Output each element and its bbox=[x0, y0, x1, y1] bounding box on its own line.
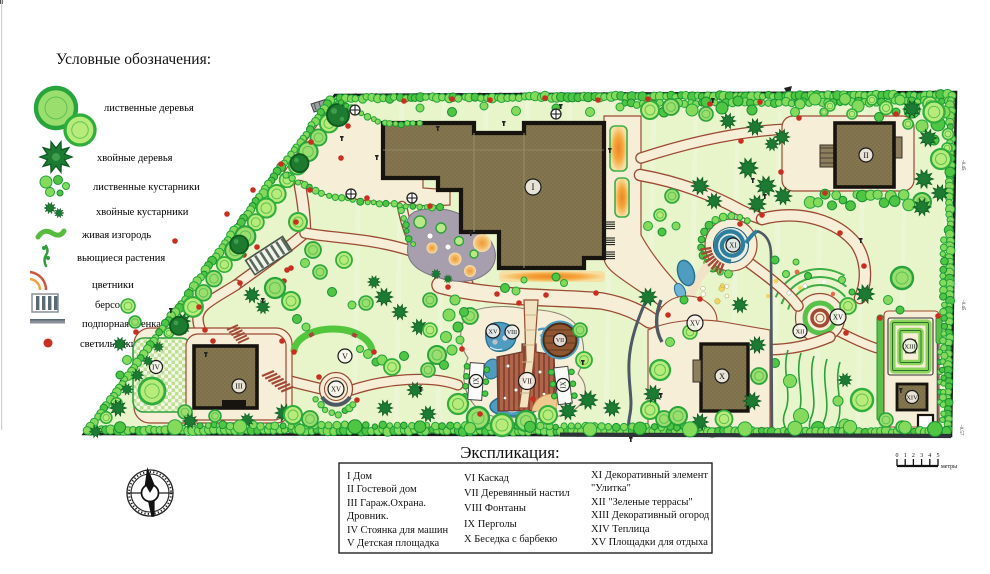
svg-text:Экспликация:: Экспликация: bbox=[460, 443, 560, 462]
svg-text:IX: IX bbox=[473, 377, 481, 384]
svg-text:III Гараж.Охрана.: III Гараж.Охрана. bbox=[347, 498, 426, 509]
svg-text:-0.57: -0.57 bbox=[958, 425, 963, 436]
svg-text:-0.45: -0.45 bbox=[960, 300, 965, 311]
svg-text:светильники: светильники bbox=[80, 339, 137, 350]
svg-text:5: 5 bbox=[937, 453, 940, 459]
svg-text:XV: XV bbox=[331, 386, 341, 394]
svg-text:II Гостевой дом: II Гостевой дом bbox=[347, 484, 417, 495]
svg-text:3: 3 bbox=[920, 453, 923, 459]
svg-text:лиственные кустарники: лиственные кустарники bbox=[93, 182, 200, 193]
svg-text:живая изгородь: живая изгородь bbox=[81, 230, 151, 241]
svg-text:VII Деревянный настил: VII Деревянный настил bbox=[464, 488, 570, 499]
svg-text:2: 2 bbox=[912, 453, 915, 459]
svg-text:X Беседка с барбекю: X Беседка с барбекю bbox=[464, 534, 558, 545]
svg-text:V: V bbox=[342, 352, 348, 361]
svg-text:IV: IV bbox=[152, 363, 160, 372]
svg-text:метры: метры bbox=[941, 464, 957, 470]
svg-text:XIII Декоративный огород: XIII Декоративный огород bbox=[591, 510, 710, 521]
svg-text:IX Перголы: IX Перголы bbox=[464, 519, 517, 530]
svg-text:берсо: берсо bbox=[95, 300, 120, 311]
svg-text:"Улитка": "Улитка" bbox=[591, 483, 631, 494]
svg-text:X: X bbox=[719, 372, 725, 381]
svg-text:-0.45: -0.45 bbox=[960, 160, 965, 171]
svg-text:I: I bbox=[532, 182, 535, 192]
svg-text:0: 0 bbox=[896, 453, 899, 459]
svg-text:Условные обозначения:: Условные обозначения: bbox=[56, 51, 211, 68]
svg-text:IV Стоянка для машин: IV Стоянка для машин bbox=[347, 525, 449, 536]
svg-text:XII "Зеленые террасы": XII "Зеленые террасы" bbox=[591, 497, 693, 508]
svg-text:VIII: VIII bbox=[507, 330, 517, 336]
svg-text:XI Декоративный элемент: XI Декоративный элемент bbox=[591, 470, 708, 481]
svg-text:цветники: цветники bbox=[92, 280, 134, 291]
svg-text:XII: XII bbox=[795, 328, 804, 335]
svg-text:XV: XV bbox=[690, 320, 700, 328]
svg-text:VII: VII bbox=[556, 338, 564, 344]
svg-text:VI Каскад: VI Каскад bbox=[464, 473, 509, 484]
svg-text:лиственные деревья: лиственные деревья bbox=[104, 103, 194, 114]
svg-text:II: II bbox=[863, 151, 869, 160]
svg-text:VII: VII bbox=[522, 378, 532, 386]
svg-text:XIV Теплица: XIV Теплица bbox=[591, 524, 650, 535]
svg-text:XI: XI bbox=[729, 242, 737, 250]
svg-text:XV Площадки для отдыха: XV Площадки для отдыха bbox=[591, 537, 708, 548]
svg-text:хвойные деревья: хвойные деревья bbox=[97, 153, 173, 164]
svg-text:хвойные кустарники: хвойные кустарники bbox=[96, 207, 189, 218]
svg-text:V Детская площадка: V Детская площадка bbox=[347, 538, 440, 549]
svg-text:вьющиеся растения: вьющиеся растения bbox=[77, 253, 165, 264]
svg-text:Дровник.: Дровник. bbox=[347, 511, 389, 522]
svg-text:XV: XV bbox=[833, 314, 843, 322]
svg-text:XIII: XIII bbox=[904, 343, 915, 350]
svg-text:IX: IX bbox=[560, 381, 568, 388]
svg-text:I Дом: I Дом bbox=[347, 471, 372, 482]
svg-text:VIII Фонтаны: VIII Фонтаны bbox=[464, 503, 526, 514]
svg-text:XV: XV bbox=[488, 328, 498, 335]
svg-text:III: III bbox=[235, 382, 243, 391]
svg-text:1: 1 bbox=[904, 453, 907, 459]
svg-text:XIV: XIV bbox=[906, 394, 918, 401]
svg-text:4: 4 bbox=[928, 453, 931, 459]
